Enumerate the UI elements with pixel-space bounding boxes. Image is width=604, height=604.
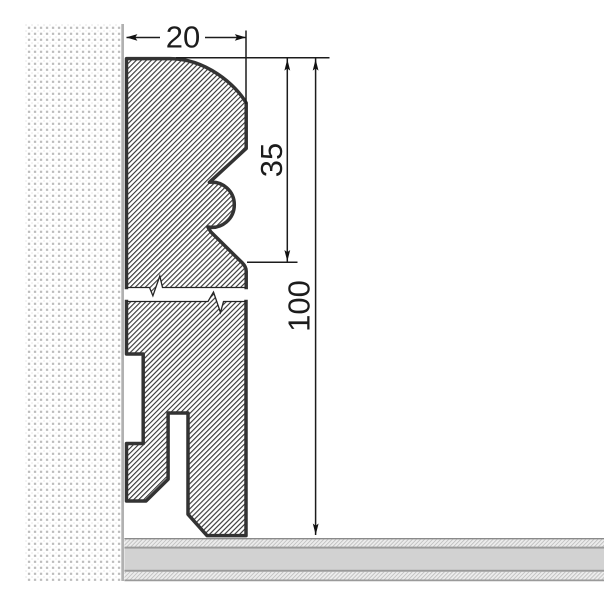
svg-text:35: 35 (254, 143, 289, 177)
svg-text:100: 100 (282, 280, 317, 332)
svg-text:20: 20 (166, 20, 200, 55)
